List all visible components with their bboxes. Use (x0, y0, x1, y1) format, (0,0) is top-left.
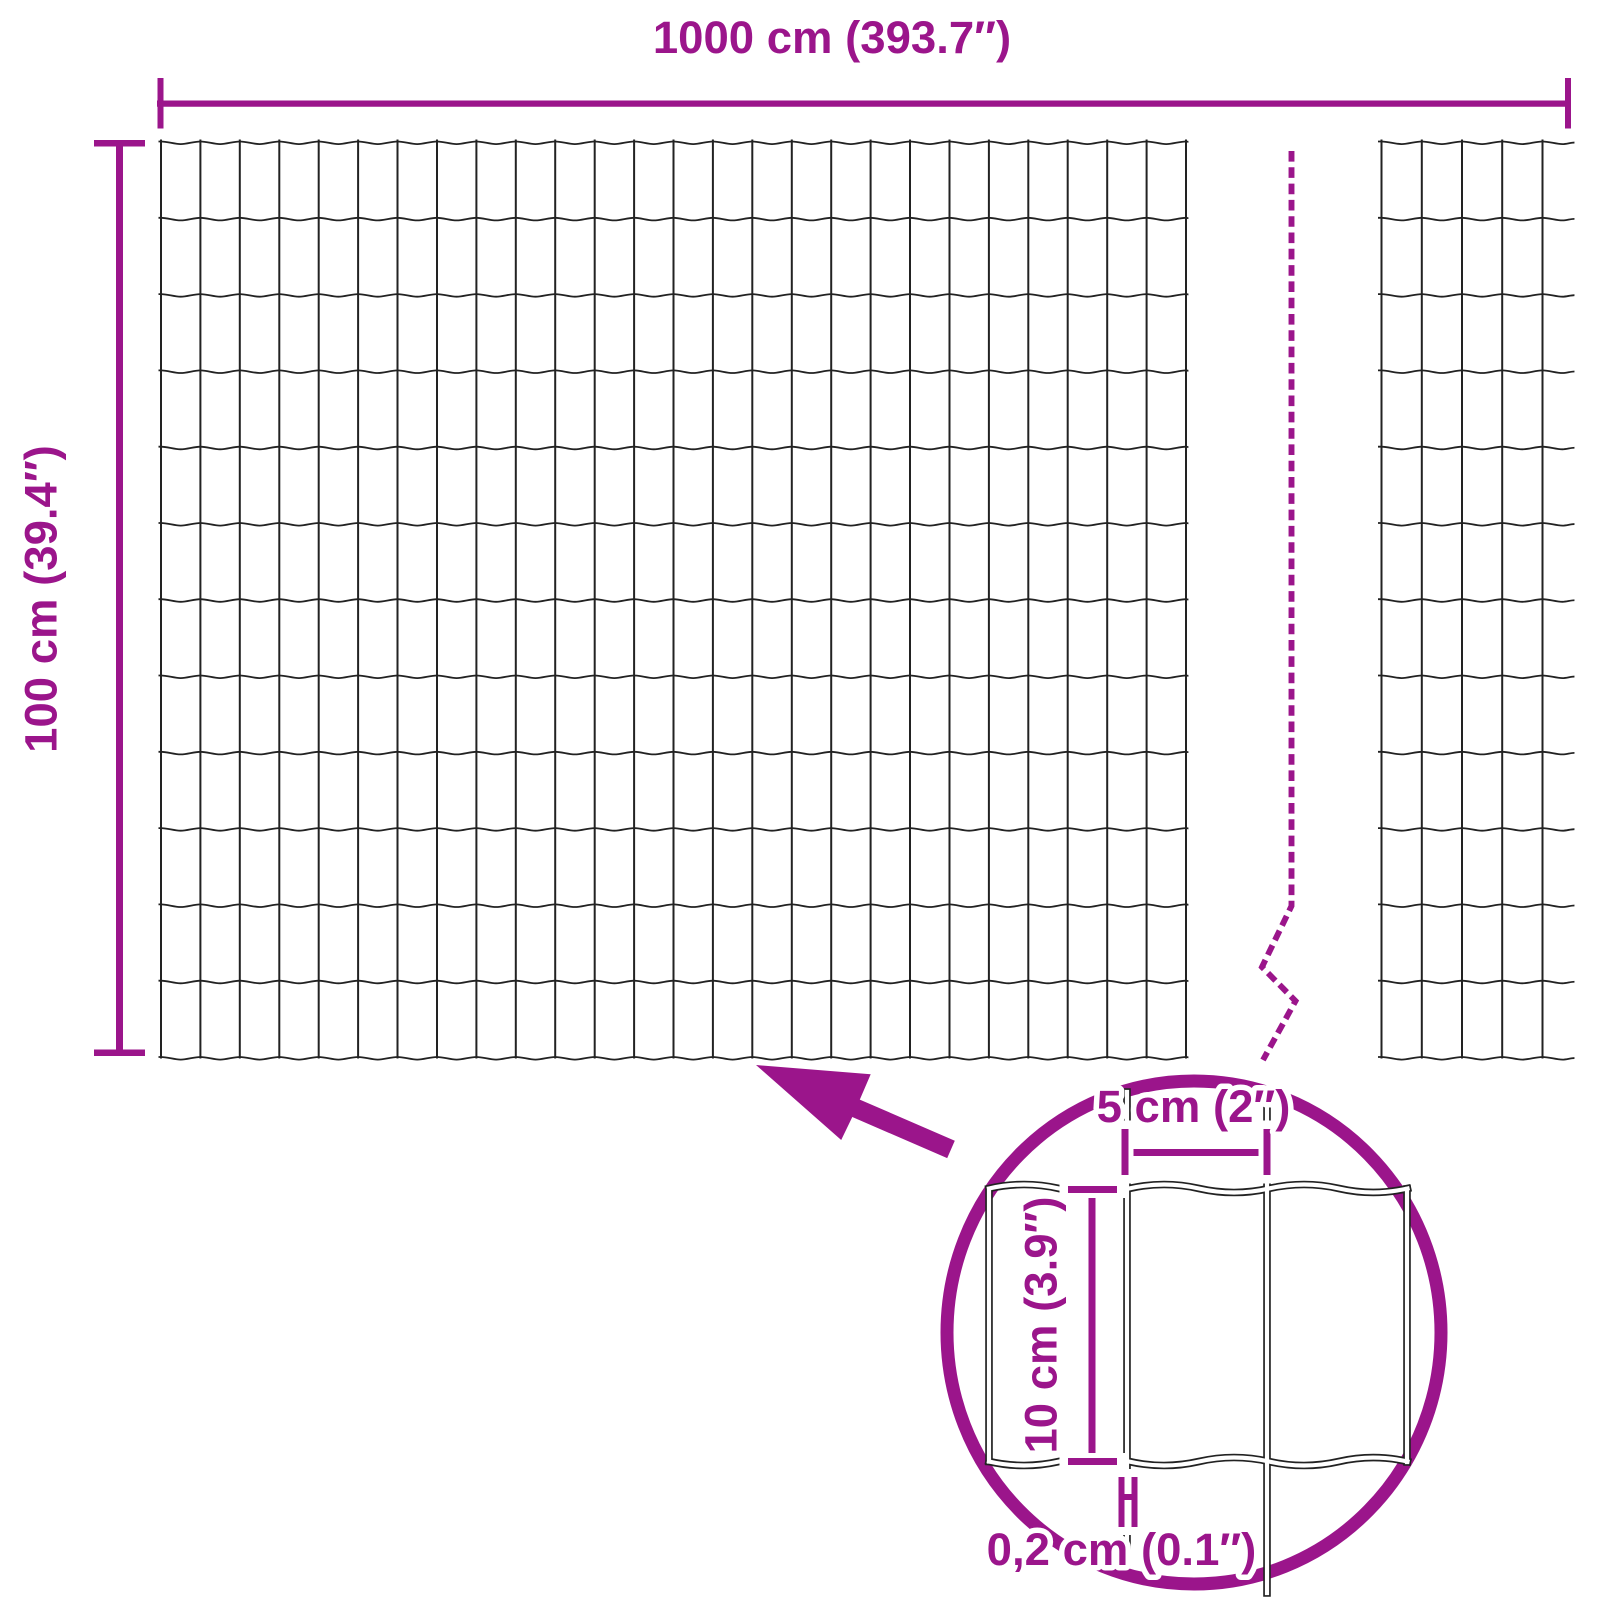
svg-text:0,2 cm (0.1″): 0,2 cm (0.1″) (987, 1524, 1257, 1575)
svg-text:5 cm (2″): 5 cm (2″) (1097, 1081, 1291, 1132)
svg-text:100 cm (39.4″): 100 cm (39.4″) (16, 445, 67, 753)
svg-text:10 cm (3.9″): 10 cm (3.9″) (1016, 1196, 1067, 1453)
svg-text:1000 cm (393.7″): 1000 cm (393.7″) (653, 12, 1011, 63)
